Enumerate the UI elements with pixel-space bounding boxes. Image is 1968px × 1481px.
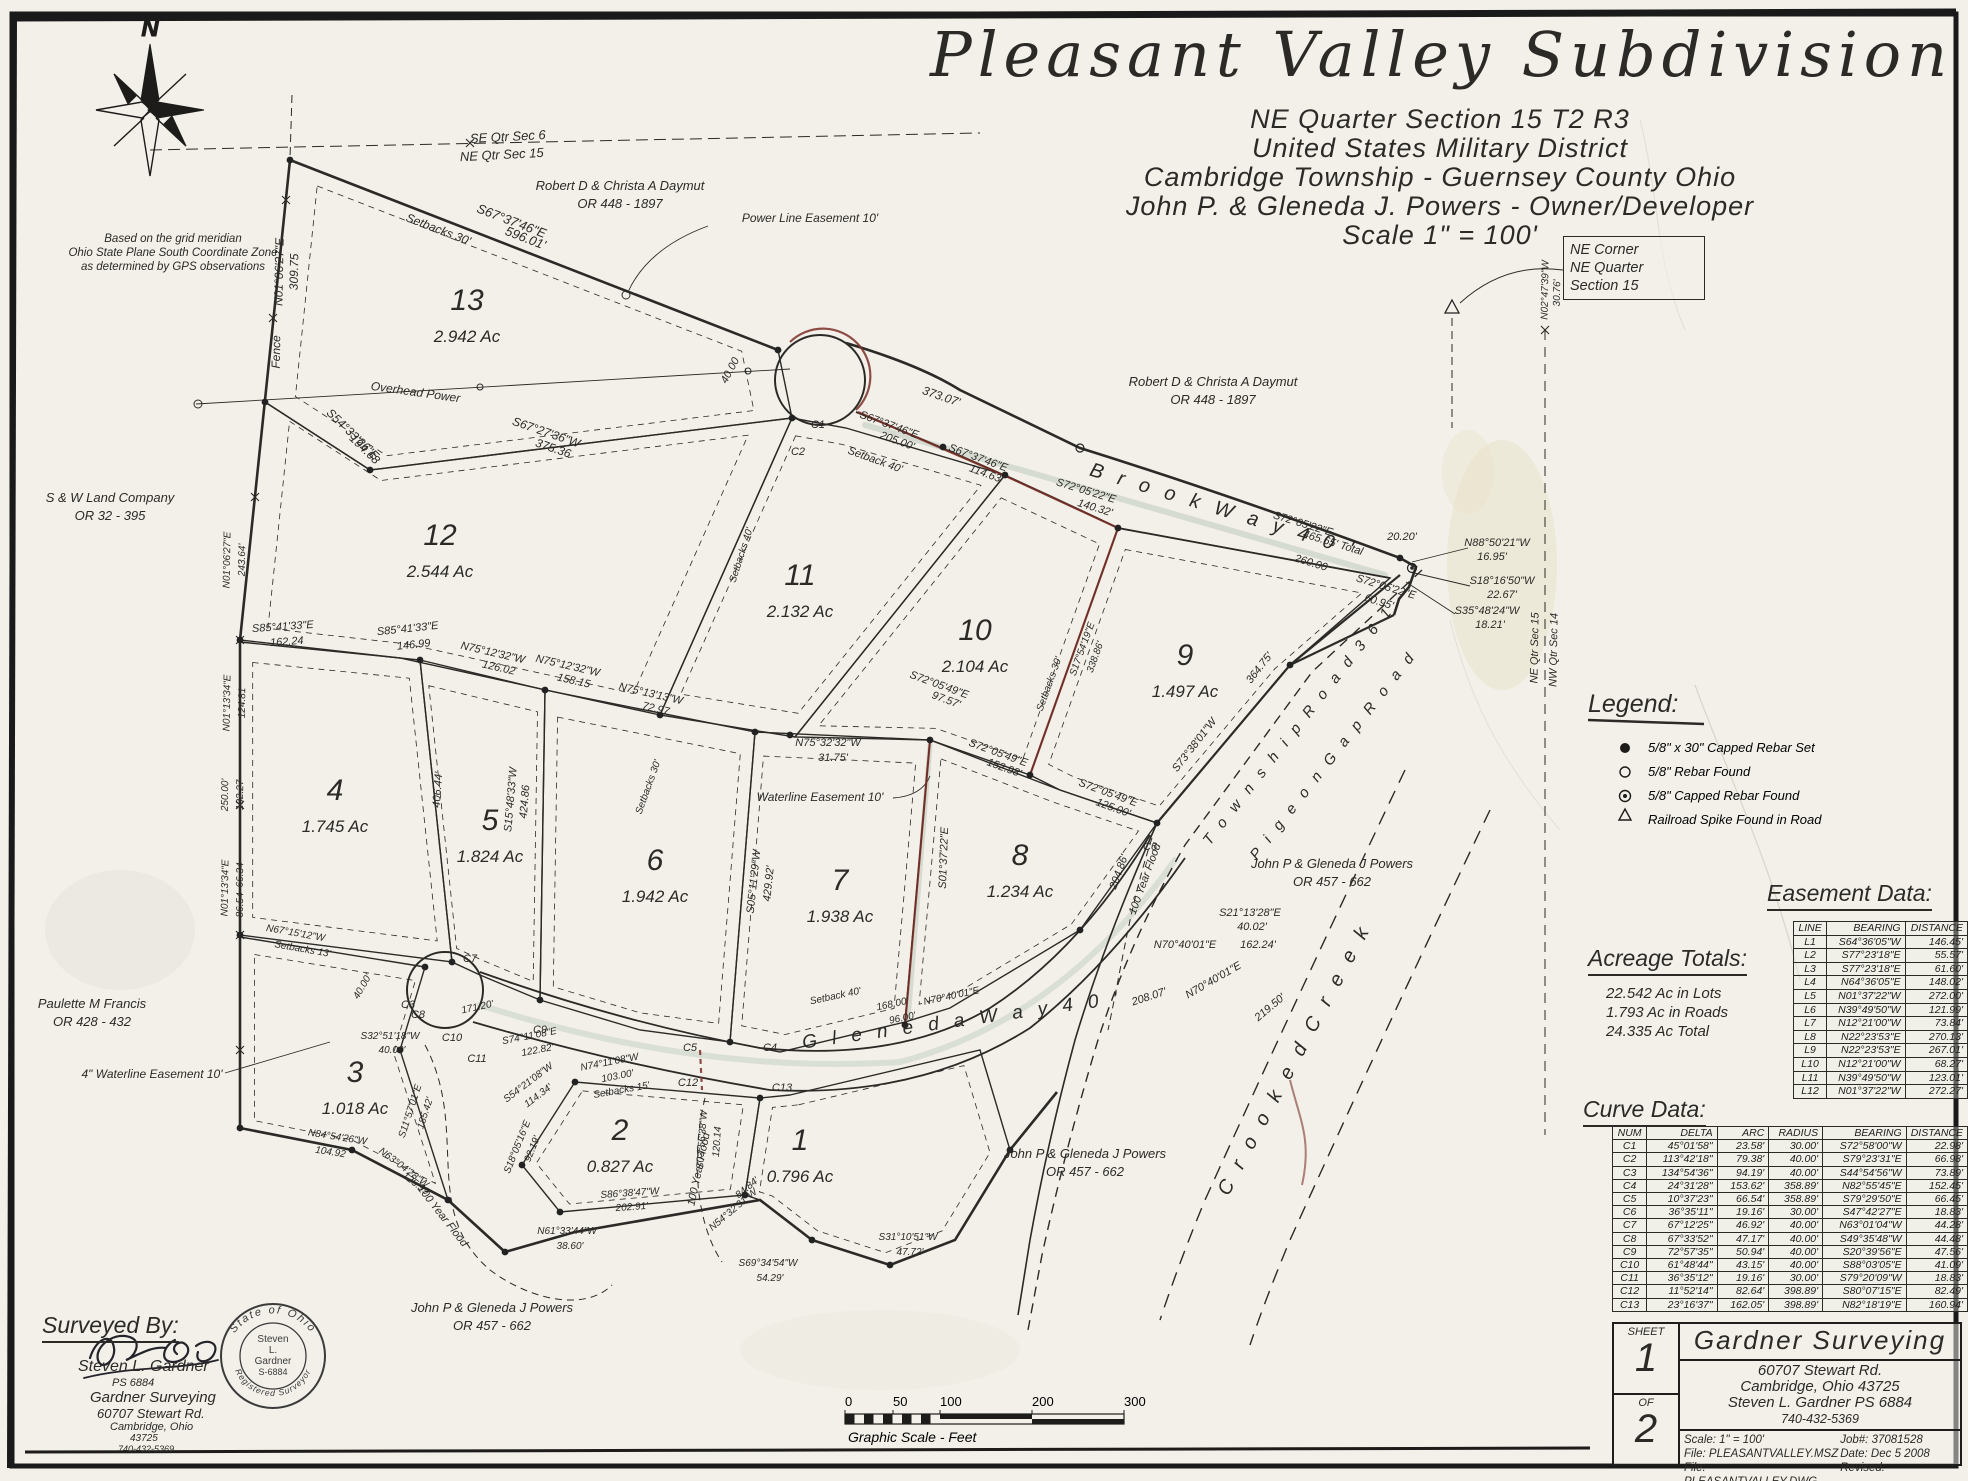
surveyor-city: Cambridge, Ohio xyxy=(110,1421,193,1433)
map-label: C6 xyxy=(1143,841,1158,853)
column-header: BEARING xyxy=(1823,1127,1907,1140)
table-cell: S79°23'31"E xyxy=(1823,1153,1907,1166)
table-cell: 153.62' xyxy=(1717,1179,1769,1192)
map-label: 4" Waterline Easement 10' xyxy=(81,1067,223,1081)
sheet-total: 2 xyxy=(1614,1409,1678,1449)
table-cell: S20°39'56"E xyxy=(1823,1245,1907,1258)
map-label: 202.91' xyxy=(614,1201,649,1214)
table-cell: 152.45' xyxy=(1906,1179,1967,1192)
gps-meridian-note: Based on the grid meridian Ohio State Pl… xyxy=(18,232,328,274)
table-cell: 160.94' xyxy=(1906,1298,1967,1311)
curve-data-table: NUM DELTA ARC RADIUS BEARING DISTANCE C1… xyxy=(1612,1126,1968,1312)
column-header: NUM xyxy=(1613,1127,1647,1140)
table-cell: C9 xyxy=(1613,1245,1647,1258)
column-header: DELTA xyxy=(1647,1127,1717,1140)
map-label: S32°51'18"W xyxy=(361,1031,421,1042)
map-label: 18.21' xyxy=(1475,619,1506,631)
table-cell: 123.01' xyxy=(1905,1071,1967,1085)
scale-tick: 200 xyxy=(1032,1394,1054,1409)
company-address: 60707 Stewart Rd. Cambridge, Ohio 43725 … xyxy=(1680,1361,1960,1431)
lot-number-3: 3 xyxy=(347,1056,364,1089)
table-cell: 24°31'28" xyxy=(1647,1179,1717,1192)
table-row: L1S64°36'05"W146.45' xyxy=(1794,935,1968,949)
map-label: John P & Gleneda J Powers xyxy=(410,1300,574,1315)
map-label: 120.14 xyxy=(711,1126,724,1158)
flood-lines xyxy=(425,838,1152,1300)
map-label: 132.27 xyxy=(235,779,247,810)
table-cell: 44.48' xyxy=(1906,1232,1967,1245)
gleneda-way-south-edge xyxy=(473,858,1185,1091)
svg-text:State of Ohio: State of Ohio xyxy=(227,1304,318,1335)
address-line: 60707 Stewart Rd. xyxy=(1680,1363,1960,1379)
table-cell: C13 xyxy=(1613,1298,1647,1311)
table-cell: N22°23'53"E xyxy=(1827,1044,1905,1058)
table-cell: N39°49'50"W xyxy=(1827,1003,1905,1017)
map-label: S85°41'33"E xyxy=(376,620,439,638)
lot-number-4: 4 xyxy=(327,774,344,807)
table-cell: S47°42'27"E xyxy=(1823,1206,1907,1219)
table-cell: 94.19' xyxy=(1717,1166,1769,1179)
map-label: 16.95' xyxy=(1477,551,1508,563)
drawing-revised: Revised: xyxy=(1840,1461,1956,1475)
legend-symbol-rebar-found-icon xyxy=(1620,767,1630,777)
map-label: S03°56'38"W xyxy=(695,1108,710,1169)
table-cell: 82.64' xyxy=(1717,1285,1769,1298)
lot-acreage-12: 2.544 Ac xyxy=(406,562,474,581)
map-label: 162.24' xyxy=(1240,939,1277,951)
table-cell: 72°57'35" xyxy=(1647,1245,1717,1258)
title-block: Pleasant Valley Subdivision NE Quarter S… xyxy=(930,18,1950,250)
railroad-spike-triangle xyxy=(1445,300,1459,313)
address-line: Steven L. Gardner PS 6884 xyxy=(1680,1395,1960,1411)
subtitle-line: John P. & Gleneda J. Powers - Owner/Deve… xyxy=(930,192,1950,221)
lot-acreage-5: 1.824 Ac xyxy=(457,847,524,866)
subtitle-line: Scale 1" = 100' xyxy=(930,221,1950,250)
table-cell: 22.98' xyxy=(1906,1140,1967,1153)
table-cell: N64°36'05"E xyxy=(1827,976,1905,990)
map-label: N70°40'01"E xyxy=(1154,939,1217,951)
map-label: John P & Gleneda J Powers xyxy=(1250,856,1414,871)
surveyor-stamp: State of Ohio Registered Surveyor Steven… xyxy=(221,1304,325,1408)
lot-number-1: 1 xyxy=(792,1124,809,1157)
table-cell: C8 xyxy=(1613,1232,1647,1245)
lot-acreage-4: 1.745 Ac xyxy=(302,817,369,836)
map-label: N01°13'34"E xyxy=(222,674,234,731)
table-cell: L7 xyxy=(1794,1017,1827,1031)
map-label: 429.92' xyxy=(761,864,777,902)
lot-acreage-10: 2.104 Ac xyxy=(941,657,1009,676)
map-label: C10 xyxy=(442,1032,463,1044)
lot-acreage-7: 1.938 Ac xyxy=(807,907,874,926)
table-cell: 43.15' xyxy=(1717,1259,1769,1272)
table-cell: 267.01' xyxy=(1905,1044,1967,1058)
table-header-row: LINE BEARING DISTANCE xyxy=(1794,922,1968,936)
table-row: C424°31'28"153.62'358.89'N82°55'45"E152.… xyxy=(1613,1179,1968,1192)
table-cell: S80°07'15"E xyxy=(1823,1285,1907,1298)
table-cell: S49°35'48"W xyxy=(1823,1232,1907,1245)
address-line: Cambridge, Ohio 43725 xyxy=(1680,1379,1960,1395)
map-label: S73°38'01"W xyxy=(1170,715,1220,775)
table-cell: 36°35'12" xyxy=(1647,1272,1717,1285)
sheet-title-block: SHEET 1 OF 2 Gardner Surveying 60707 Ste… xyxy=(1612,1322,1962,1466)
legend-symbol-capped-rebar-found-icon xyxy=(1620,791,1631,802)
table-row: L6N39°49'50"W121.99' xyxy=(1794,1003,1968,1017)
table-cell: C12 xyxy=(1613,1285,1647,1298)
stamp-state-text: State of Ohio xyxy=(227,1304,318,1335)
table-cell: N63°01'04"W xyxy=(1823,1219,1907,1232)
table-cell: S79°29'50"E xyxy=(1823,1193,1907,1206)
map-label: 54.29' xyxy=(757,1273,785,1284)
table-cell: 272.00' xyxy=(1905,989,1967,1003)
lot-setback-line-4 xyxy=(253,663,438,941)
table-row: C2113°42'18"79.38'40.00'S79°23'31"E66.98… xyxy=(1613,1153,1968,1166)
table-cell: 66.45' xyxy=(1906,1193,1967,1206)
map-label: 250.00' xyxy=(220,778,232,813)
lot-acreage-13: 2.942 Ac xyxy=(433,327,501,346)
table-cell: C3 xyxy=(1613,1166,1647,1179)
table-cell: N12°21'00"W xyxy=(1827,1017,1905,1031)
table-cell: 73.84' xyxy=(1905,1017,1967,1031)
table-cell: L6 xyxy=(1794,1003,1827,1017)
table-cell: 67°12'25" xyxy=(1647,1219,1717,1232)
surveyor-address: 60707 Stewart Rd. xyxy=(97,1406,205,1421)
paper-stains xyxy=(45,120,1800,1390)
table-row: L9N22°23'53"E267.01' xyxy=(1794,1044,1968,1058)
legend-symbol-railroad-spike-icon xyxy=(1619,809,1631,820)
lot-acreage-9: 1.497 Ac xyxy=(1152,682,1219,701)
lot-number-7: 7 xyxy=(832,864,850,897)
table-cell: N82°55'45"E xyxy=(1823,1179,1907,1192)
table-cell: L12 xyxy=(1794,1085,1827,1099)
map-label: C5 xyxy=(683,1042,698,1054)
table-cell: 272.27' xyxy=(1905,1085,1967,1099)
table-cell: L2 xyxy=(1794,949,1827,963)
table-cell: 40.00' xyxy=(1769,1259,1823,1272)
table-row: L5N01°37'22"W272.00' xyxy=(1794,989,1968,1003)
table-cell: C10 xyxy=(1613,1259,1647,1272)
table-cell: S79°20'09"W xyxy=(1823,1272,1907,1285)
map-label: 38.60' xyxy=(557,1241,585,1252)
table-cell: 113°42'18" xyxy=(1647,1153,1717,1166)
easement-data-table: LINE BEARING DISTANCE L1S64°36'05"W146.4… xyxy=(1793,921,1968,1099)
surveyor-ps: PS 6884 xyxy=(112,1377,154,1389)
lot-number-8: 8 xyxy=(1012,839,1029,872)
table-cell: 61°48'44" xyxy=(1647,1259,1717,1272)
map-label: Robert D & Christa A Daymut xyxy=(1129,374,1299,389)
column-header: RADIUS xyxy=(1769,1127,1823,1140)
stamp-number: S-6884 xyxy=(258,1367,287,1377)
table-cell: S64°36'05"W xyxy=(1827,935,1905,949)
table-cell: 82.49' xyxy=(1906,1285,1967,1298)
map-label: Setbacks 30' xyxy=(404,210,473,248)
table-cell: N01°37'22"W xyxy=(1827,1085,1905,1099)
table-row: C972°57'35"50.94'40.00'S20°39'56"E47.56' xyxy=(1613,1245,1968,1258)
table-cell: L1 xyxy=(1794,935,1827,949)
acreage-line: 1.793 Ac in Roads xyxy=(1606,1003,1728,1022)
map-label: 208.07' xyxy=(1129,986,1169,1009)
legend-item-label: 5/8" x 30" Capped Rebar Set xyxy=(1648,740,1816,755)
table-cell: 19.16' xyxy=(1717,1272,1769,1285)
map-label: S31°10'51"W xyxy=(879,1232,939,1243)
map-label: Robert D & Christa A Daymut xyxy=(536,178,706,193)
scale-tick: 50 xyxy=(893,1394,907,1409)
lot-boundary-10 xyxy=(795,475,1118,775)
table-cell: 270.13' xyxy=(1905,1030,1967,1044)
table-cell: 67°33'52" xyxy=(1647,1232,1717,1245)
map-label: NW Qtr Sec 14 xyxy=(1547,613,1560,687)
map-label: OR 428 - 432 xyxy=(53,1014,132,1029)
table-cell: C5 xyxy=(1613,1193,1647,1206)
sheet-number: 1 xyxy=(1614,1338,1678,1378)
legend-item-label: 5/8" Capped Rebar Found xyxy=(1648,788,1800,803)
fence-tick-marks xyxy=(236,139,1549,1054)
map-label: C1 xyxy=(811,419,825,431)
table-cell: S77°23'18"E xyxy=(1827,962,1905,976)
table-cell: L5 xyxy=(1794,989,1827,1003)
table-cell: 358.89' xyxy=(1769,1179,1823,1192)
note-line: Based on the grid meridian xyxy=(18,232,328,246)
table-cell: L11 xyxy=(1794,1071,1827,1085)
surveyor-zip: 43725 xyxy=(130,1433,158,1444)
map-label: 40.00' xyxy=(379,1045,407,1056)
easement-data-heading: Easement Data: xyxy=(1767,880,1932,911)
table-row: C1211°52'14"82.64'398.89'S80°07'15"E82.4… xyxy=(1613,1285,1968,1298)
table-row: L3S77°23'18"E61.60' xyxy=(1794,962,1968,976)
lot-number-11: 11 xyxy=(784,559,815,592)
table-cell: N82°18'19"E xyxy=(1823,1298,1907,1311)
table-cell: 50.94' xyxy=(1717,1245,1769,1258)
brook-way-culdesac xyxy=(775,335,865,425)
acreage-totals-heading: Acreage Totals: xyxy=(1588,945,1747,976)
map-label: S15°48'33"W xyxy=(502,765,520,832)
map-label: 171.20' xyxy=(460,999,495,1017)
map-label: 124.81 xyxy=(237,688,249,719)
table-cell: N01°37'22"W xyxy=(1827,989,1905,1003)
map-label: N75°32'32"W xyxy=(795,737,862,749)
plat-page: 132.942 Ac122.544 Ac112.132 Ac102.104 Ac… xyxy=(0,0,1968,1481)
table-cell: N22°23'53"E xyxy=(1827,1030,1905,1044)
map-label: 86.54 xyxy=(235,892,246,918)
map-label: NE Qtr Sec 15 xyxy=(460,145,545,164)
table-cell: 73.89' xyxy=(1906,1166,1967,1179)
table-row: C145°01'58"23.58'30.00'S72°58'00"W22.98' xyxy=(1613,1140,1968,1153)
table-cell: 30.00' xyxy=(1769,1206,1823,1219)
scale-bar-label: Graphic Scale - Feet xyxy=(848,1429,977,1445)
stamp-name-line: L. xyxy=(269,1345,277,1356)
table-row: C767°12'25"46.92'40.00'N63°01'04"W44.28' xyxy=(1613,1219,1968,1232)
map-label: C11 xyxy=(467,1053,486,1065)
table-cell: L9 xyxy=(1794,1044,1827,1058)
table-cell: 55.57' xyxy=(1905,949,1967,963)
map-label: 243.64' xyxy=(237,543,249,578)
table-cell: L8 xyxy=(1794,1030,1827,1044)
map-label: C13 xyxy=(772,1082,793,1094)
table-cell: 121.99' xyxy=(1905,1003,1967,1017)
note-line: as determined by GPS observations xyxy=(18,260,328,274)
lot-number-2: 2 xyxy=(611,1114,629,1147)
subtitle-line: Cambridge Township - Guernsey County Ohi… xyxy=(930,163,1950,192)
lot-number-9: 9 xyxy=(1177,639,1194,672)
table-row: L4N64°36'05"E148.02' xyxy=(1794,976,1968,990)
table-cell: 18.83' xyxy=(1906,1272,1967,1285)
table-row: L12N01°37'22"W272.27' xyxy=(1794,1085,1968,1099)
map-label: C12 xyxy=(678,1077,698,1089)
map-label: OR 457 - 662 xyxy=(453,1318,532,1333)
surveyed-by-heading: Surveyed By: xyxy=(42,1312,179,1343)
table-cell: 30.00' xyxy=(1769,1272,1823,1285)
table-cell: 44.28' xyxy=(1906,1219,1967,1232)
column-header: LINE xyxy=(1794,922,1827,936)
drawing-scale: Scale: 1" = 100' xyxy=(1684,1433,1840,1447)
map-label: S86°38'47"W xyxy=(600,1186,661,1201)
map-label: N61°33'44"W xyxy=(537,1226,598,1237)
map-label: 146.99 xyxy=(396,637,431,652)
map-label: N88°50'21"W xyxy=(1464,537,1531,549)
map-label: 66.34 xyxy=(235,862,246,888)
column-header: ARC xyxy=(1717,1127,1769,1140)
lot-boundary-3 xyxy=(240,937,448,1200)
table-cell: S72°58'00"W xyxy=(1823,1140,1907,1153)
compass-rose: N xyxy=(96,15,204,176)
map-label: 40.02' xyxy=(1237,921,1268,933)
column-header: BEARING xyxy=(1827,922,1905,936)
map-label: N70°40'01"E xyxy=(1183,959,1244,1001)
map-label: 204.86' xyxy=(1107,852,1131,891)
lot-number-13: 13 xyxy=(450,284,484,317)
table-cell: 398.89' xyxy=(1769,1298,1823,1311)
table-cell: L10 xyxy=(1794,1057,1827,1071)
table-row: C1323°16'37"162.05'398.89'N82°18'19"E160… xyxy=(1613,1298,1968,1311)
map-label: S18°16'50"W xyxy=(1470,575,1536,587)
map-label: Power Line Easement 10' xyxy=(742,211,879,225)
surveyor-phone: 740-432-5369 xyxy=(118,1444,174,1454)
lot-acreage-6: 1.942 Ac xyxy=(622,887,689,906)
legend-item-label: 5/8" Rebar Found xyxy=(1648,764,1751,779)
map-label: S35°48'24"W xyxy=(1455,605,1521,617)
table-cell: 46.92' xyxy=(1717,1219,1769,1232)
map-label: S01°37'22"E xyxy=(937,826,951,889)
map-label: N01°13'34"E xyxy=(220,859,232,916)
table-cell: C2 xyxy=(1613,1153,1647,1166)
note-line: Ohio State Plane South Coordinate Zone xyxy=(18,246,328,260)
table-cell: N39°49'50"W xyxy=(1827,1071,1905,1085)
table-row: C636°35'11"19.16'30.00'S47°42'27"E18.83' xyxy=(1613,1206,1968,1219)
scale-tick: 300 xyxy=(1124,1394,1146,1409)
table-row: C510°37'23"66.54'358.89'S79°29'50"E66.45… xyxy=(1613,1193,1968,1206)
map-label: N01°06'27"E xyxy=(222,531,234,588)
map-label: Setback 40' xyxy=(809,986,863,1008)
ne-corner-callout: NE Corner NE Quarter Section 15 xyxy=(1563,236,1705,300)
map-label: N02°47'39"W xyxy=(1539,259,1551,320)
lot-acreage-3: 1.018 Ac xyxy=(322,1099,389,1118)
table-cell: 19.16' xyxy=(1717,1206,1769,1219)
table-cell: 66.98' xyxy=(1906,1153,1967,1166)
sheet-number-cells: SHEET 1 OF 2 xyxy=(1614,1324,1680,1464)
graphic-scale-bar: 0 50 100 200 300 Graphic Scale - Feet xyxy=(845,1394,1146,1445)
lot-acreage-2: 0.827 Ac xyxy=(587,1157,654,1176)
map-label: 364.75' xyxy=(1244,650,1276,686)
map-label: N70°40'01"E xyxy=(923,985,981,1008)
job-number: Job#: 37081528 xyxy=(1840,1433,1956,1447)
subtitle-line: NE Quarter Section 15 T2 R3 xyxy=(930,105,1950,134)
drawing-date: Date: Dec 5 2008 xyxy=(1840,1447,1956,1461)
map-label: OR 457 - 662 xyxy=(1293,874,1372,889)
map-label: 20.20' xyxy=(1386,531,1418,543)
map-label: C2 xyxy=(791,446,805,458)
map-label: C7 xyxy=(463,953,478,965)
drawing-info: Scale: 1" = 100' File: PLEASANTVALLEY.MS… xyxy=(1680,1431,1960,1481)
map-label: 40.00' xyxy=(351,971,375,1001)
acreage-line: 24.335 Ac Total xyxy=(1606,1022,1728,1041)
map-label: 406.44' xyxy=(431,771,446,808)
table-row: L11N39°49'50"W123.01' xyxy=(1794,1071,1968,1085)
lot-number-6: 6 xyxy=(647,844,664,877)
bottom-rule xyxy=(25,1448,1590,1452)
table-cell: N12°21'00"W xyxy=(1827,1057,1905,1071)
table-cell: S88°03'05"E xyxy=(1823,1259,1907,1272)
lot-boundary-4 xyxy=(240,642,452,962)
lot-setback-line-11 xyxy=(681,436,981,714)
table-cell: 45°01'58" xyxy=(1647,1140,1717,1153)
column-header: DISTANCE xyxy=(1905,922,1967,936)
acreage-totals: 22.542 Ac in Lots 1.793 Ac in Roads 24.3… xyxy=(1606,984,1728,1041)
sheet-cell: SHEET 1 xyxy=(1614,1324,1678,1393)
page-title: Pleasant Valley Subdivision xyxy=(930,18,1950,91)
table-cell: 10°37'23" xyxy=(1647,1193,1717,1206)
compass-north-label: N xyxy=(141,15,159,42)
map-label: S85°41'33"E xyxy=(252,619,315,635)
table-cell: 40.00' xyxy=(1769,1166,1823,1179)
table-cell: C11 xyxy=(1613,1272,1647,1285)
table-row: C1061°48'44"43.15'40.00'S88°03'05"E41.09… xyxy=(1613,1259,1968,1272)
table-row: L7N12°21'00"W73.84' xyxy=(1794,1017,1968,1031)
table-row: L2S77°23'18"E55.57' xyxy=(1794,949,1968,963)
map-label: 424.86 xyxy=(518,784,533,819)
map-label: NE Qtr Sec 15 xyxy=(1528,612,1541,684)
drawing-file: File: PLEASANTVALLEY.DWG xyxy=(1684,1461,1840,1481)
table-cell: 66.54' xyxy=(1717,1193,1769,1206)
table-cell: 358.89' xyxy=(1769,1193,1823,1206)
table-cell: C1 xyxy=(1613,1140,1647,1153)
table-cell: C6 xyxy=(1613,1206,1647,1219)
map-label: S & W Land Company xyxy=(46,490,176,505)
curve-data-heading: Curve Data: xyxy=(1583,1096,1706,1127)
lot-acreage-11: 2.132 Ac xyxy=(766,602,834,621)
table-row: C1136°35'12"19.16'30.00'S79°20'09"W18.83… xyxy=(1613,1272,1968,1285)
map-label: OR 457 - 662 xyxy=(1046,1164,1125,1179)
scale-tick: 0 xyxy=(845,1394,852,1409)
map-label: C9 xyxy=(533,1024,547,1036)
map-label: OR 448 - 1897 xyxy=(1170,392,1256,407)
lot-number-10: 10 xyxy=(958,614,992,647)
table-cell: 134°54'36" xyxy=(1647,1166,1717,1179)
table-cell: 36°35'11" xyxy=(1647,1206,1717,1219)
table-cell: 40.00' xyxy=(1769,1245,1823,1258)
lot-acreage-1: 0.796 Ac xyxy=(767,1167,834,1186)
table-cell: 162.05' xyxy=(1717,1298,1769,1311)
column-header: DISTANCE xyxy=(1906,1127,1967,1140)
subtitle-line: United States Military District xyxy=(930,134,1950,163)
lot-acreage-8: 1.234 Ac xyxy=(987,882,1054,901)
table-cell: S44°54'56"W xyxy=(1823,1166,1907,1179)
map-label: S05°11'29"W xyxy=(745,848,764,915)
stamp-name-line: Steven xyxy=(257,1334,288,1345)
map-label: SE Qtr Sec 6 xyxy=(469,127,546,146)
surveyor-name: Steven L. Gardner xyxy=(78,1358,209,1376)
callout-line: NE Corner xyxy=(1570,241,1698,259)
map-label: Paulette M Francis xyxy=(38,996,147,1011)
table-cell: C7 xyxy=(1613,1219,1647,1232)
